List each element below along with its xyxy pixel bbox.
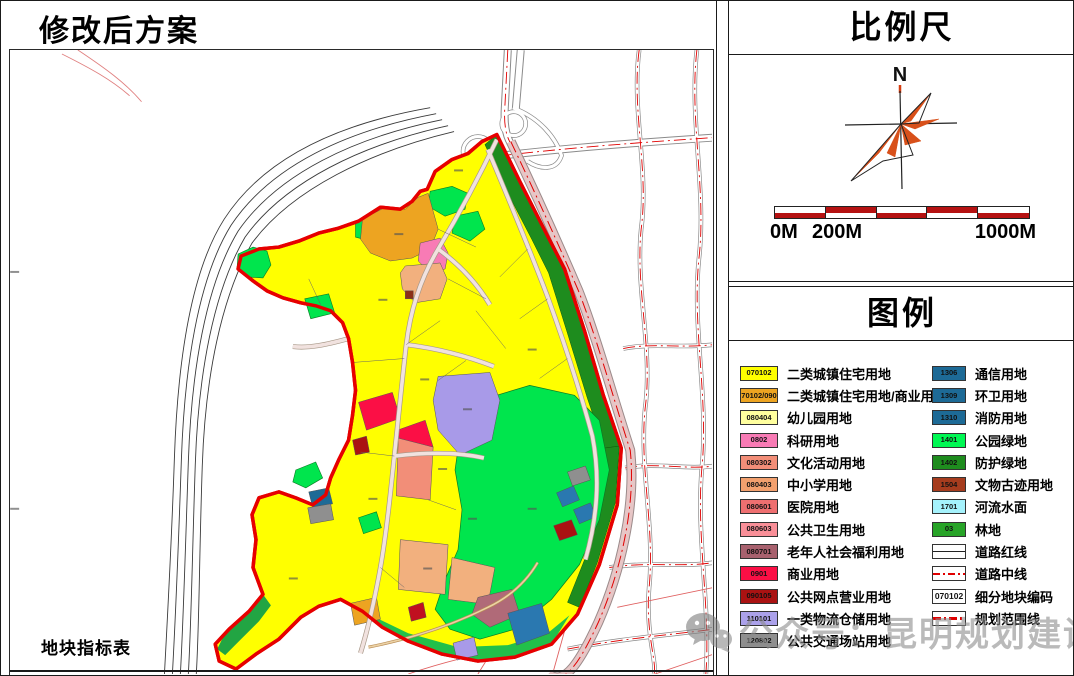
legend-column-right: 1306通信用地1309环卫用地1310消防用地1401公园绿地1402防护绿地…	[932, 362, 1074, 652]
legend-label: 中小学用地	[787, 475, 852, 494]
legend-item-right-1: 1309环卫用地	[932, 384, 1074, 406]
legend-label: 环卫用地	[975, 386, 1027, 405]
legend-swatch	[932, 566, 966, 581]
legend-item-left-12: 120802公共交通场站用地	[740, 630, 932, 652]
legend-item-right-9: 道路中线	[932, 563, 1074, 585]
legend-swatch: 1701	[932, 499, 966, 514]
legend-swatch: 080404	[740, 410, 778, 425]
legend-label: 科研用地	[787, 431, 839, 450]
legend-label: 二类城镇住宅用地/商业用地	[787, 386, 947, 405]
legend-label: 公共交通场站用地	[787, 631, 891, 650]
legend-item-left-4: 080302文化活动用地	[740, 451, 932, 473]
legend-swatch: 120802	[740, 633, 778, 648]
legend-item-right-4: 1402防护绿地	[932, 451, 1074, 473]
legend-item-right-7: 03林地	[932, 518, 1074, 540]
legend-item-right-6: 1701河流水面	[932, 496, 1074, 518]
legend-swatch: 070102	[932, 589, 966, 604]
legend-swatch: 080701	[740, 544, 778, 559]
parcel-school-salmon	[398, 540, 448, 595]
legend-label: 通信用地	[975, 364, 1027, 383]
legend-item-left-1: 070102/0901二类城镇住宅用地/商业用地	[740, 384, 932, 406]
map-panel: 修改后方案	[1, 1, 717, 676]
legend-body: 070102二类城镇住宅用地070102/0901二类城镇住宅用地/商业用地08…	[729, 341, 1074, 652]
legend-item-left-2: 080404幼儿园用地	[740, 407, 932, 429]
legend-item-left-0: 070102二类城镇住宅用地	[740, 362, 932, 384]
legend-label: 幼儿园用地	[787, 408, 852, 427]
legend-label: 细分地块编码	[975, 587, 1053, 606]
legend-column-left: 070102二类城镇住宅用地070102/0901二类城镇住宅用地/商业用地08…	[729, 362, 932, 652]
legend-item-right-10: 070102细分地块编码	[932, 585, 1074, 607]
legend-label: 老年人社会福利用地	[787, 542, 904, 561]
legend-item-left-8: 080701老年人社会福利用地	[740, 540, 932, 562]
legend-item-left-3: 0802科研用地	[740, 429, 932, 451]
legend-label: 规划范围线	[975, 609, 1040, 628]
legend-item-left-5: 080403中小学用地	[740, 473, 932, 495]
legend-swatch: 1306	[932, 366, 966, 381]
legend-item-right-2: 1310消防用地	[932, 407, 1074, 429]
compass-rose: N	[827, 61, 977, 198]
legend-item-left-10: 090105公共网点营业用地	[740, 585, 932, 607]
legend-swatch: 03	[932, 522, 966, 537]
legend-swatch: 1401	[932, 433, 966, 448]
parcel-heritage-brown	[405, 291, 413, 299]
legend-swatch: 0802	[740, 433, 778, 448]
planning-map	[10, 50, 712, 674]
legend-label: 一类物流仓储用地	[787, 609, 891, 628]
table-top-border	[10, 670, 713, 672]
legend-label: 二类城镇住宅用地	[787, 364, 891, 383]
legend-swatch: 080302	[740, 455, 778, 470]
scale-bar: 0M 200M 1000M	[774, 206, 1030, 246]
legend-item-left-6: 080601医院用地	[740, 496, 932, 518]
legend-item-right-8: 道路红线	[932, 540, 1074, 562]
legend-swatch	[932, 611, 966, 626]
parcel-culture-salmon	[396, 438, 433, 500]
scale-section-title: 比例尺	[729, 1, 1074, 55]
legend-label: 文化活动用地	[787, 453, 865, 472]
legend-swatch: 1310	[932, 410, 966, 425]
legend-label: 公园绿地	[975, 431, 1027, 450]
legend-item-right-0: 1306通信用地	[932, 362, 1074, 384]
legend-label: 文物古迹用地	[975, 475, 1053, 494]
legend-swatch: 080603	[740, 522, 778, 537]
legend-swatch: 080601	[740, 499, 778, 514]
legend-item-right-3: 1401公园绿地	[932, 429, 1074, 451]
legend-label: 河流水面	[975, 497, 1027, 516]
legend-section: 图例 070102二类城镇住宅用地070102/0901二类城镇住宅用地/商业用…	[729, 286, 1074, 652]
table-caption: 地块指标表	[38, 634, 134, 659]
legend-section-title: 图例	[729, 286, 1074, 341]
legend-swatch: 1402	[932, 455, 966, 470]
map-canvas: 地块指标表	[9, 49, 714, 676]
legend-label: 林地	[975, 520, 1001, 539]
legend-swatch: 070102	[740, 366, 778, 381]
planning-scheme-page: 修改后方案	[0, 0, 1074, 676]
legend-swatch: 1504	[932, 477, 966, 492]
page-title: 修改后方案	[39, 6, 199, 50]
side-panel: 比例尺 N	[728, 1, 1074, 676]
legend-label: 公共网点营业用地	[787, 587, 891, 606]
north-label: N	[893, 64, 907, 86]
legend-swatch: 070102/0901	[740, 388, 778, 403]
legend-swatch: 0901	[740, 566, 778, 581]
legend-item-right-5: 1504文物古迹用地	[932, 473, 1074, 495]
legend-item-right-11: 规划范围线	[932, 607, 1074, 629]
legend-label: 道路中线	[975, 564, 1027, 583]
legend-swatch: 090105	[740, 589, 778, 604]
legend-label: 防护绿地	[975, 453, 1027, 472]
legend-label: 消防用地	[975, 408, 1027, 427]
legend-label: 公共卫生用地	[787, 520, 865, 539]
scale-section: 比例尺 N	[729, 1, 1074, 282]
legend-item-left-9: 0901商业用地	[740, 563, 932, 585]
scale-bar-segments	[774, 206, 1030, 219]
legend-item-left-7: 080603公共卫生用地	[740, 518, 932, 540]
legend-swatch: 110101	[740, 611, 778, 626]
legend-swatch: 080403	[740, 477, 778, 492]
legend-swatch	[932, 544, 966, 559]
scale-label-mid: 200M	[812, 221, 862, 244]
legend-label: 商业用地	[787, 564, 839, 583]
legend-label: 医院用地	[787, 497, 839, 516]
legend-label: 道路红线	[975, 542, 1027, 561]
scale-label-start: 0M	[770, 221, 798, 244]
scale-label-end: 1000M	[975, 221, 1036, 244]
legend-item-left-11: 110101一类物流仓储用地	[740, 607, 932, 629]
legend-swatch: 1309	[932, 388, 966, 403]
